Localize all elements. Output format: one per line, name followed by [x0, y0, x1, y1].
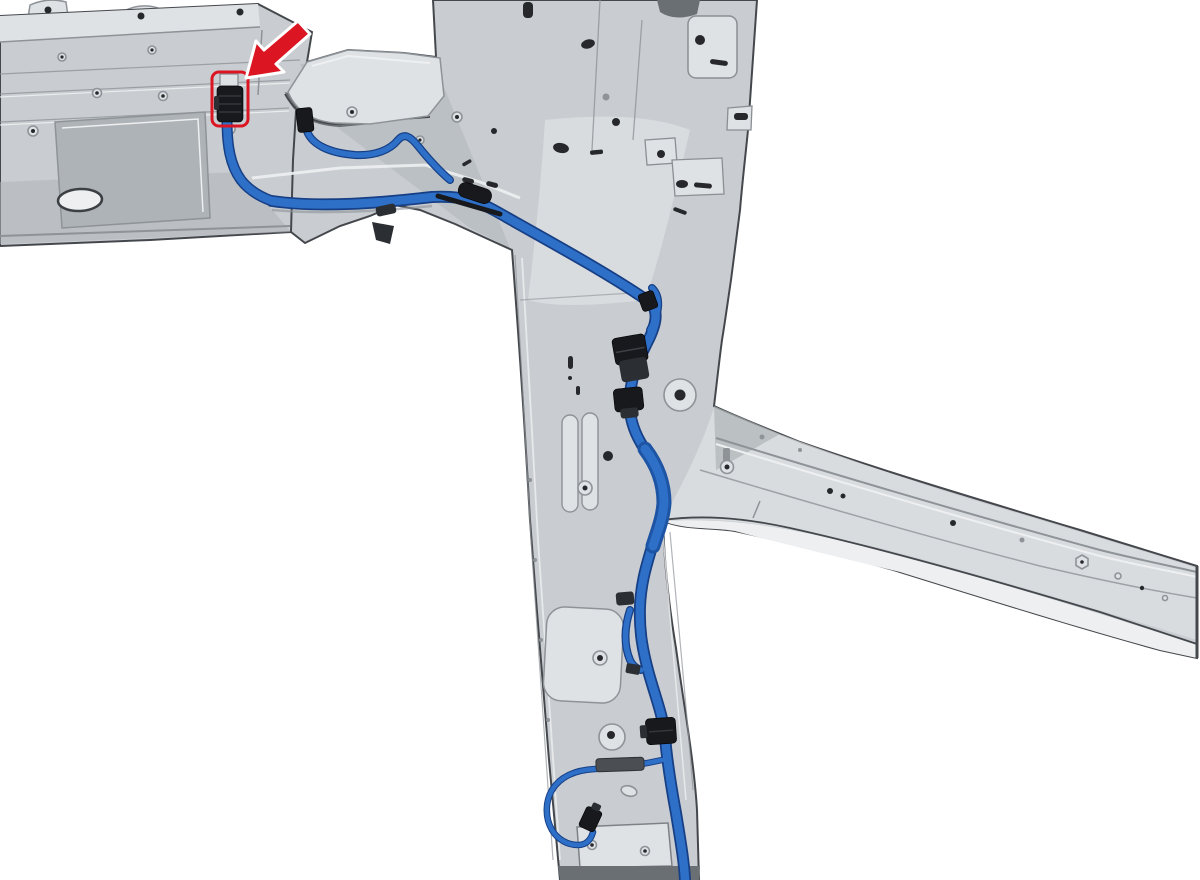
body-harness-illustration [0, 0, 1200, 880]
pillar-clip [616, 591, 635, 606]
branch-clip-bar [596, 757, 644, 772]
body-structure [0, 0, 1197, 880]
illustration-stage [0, 0, 1200, 880]
harness-clip-upper [296, 107, 314, 133]
highlighted-connector [214, 86, 243, 122]
flange-clip [372, 222, 394, 244]
connector-bracket-tab [220, 74, 238, 86]
